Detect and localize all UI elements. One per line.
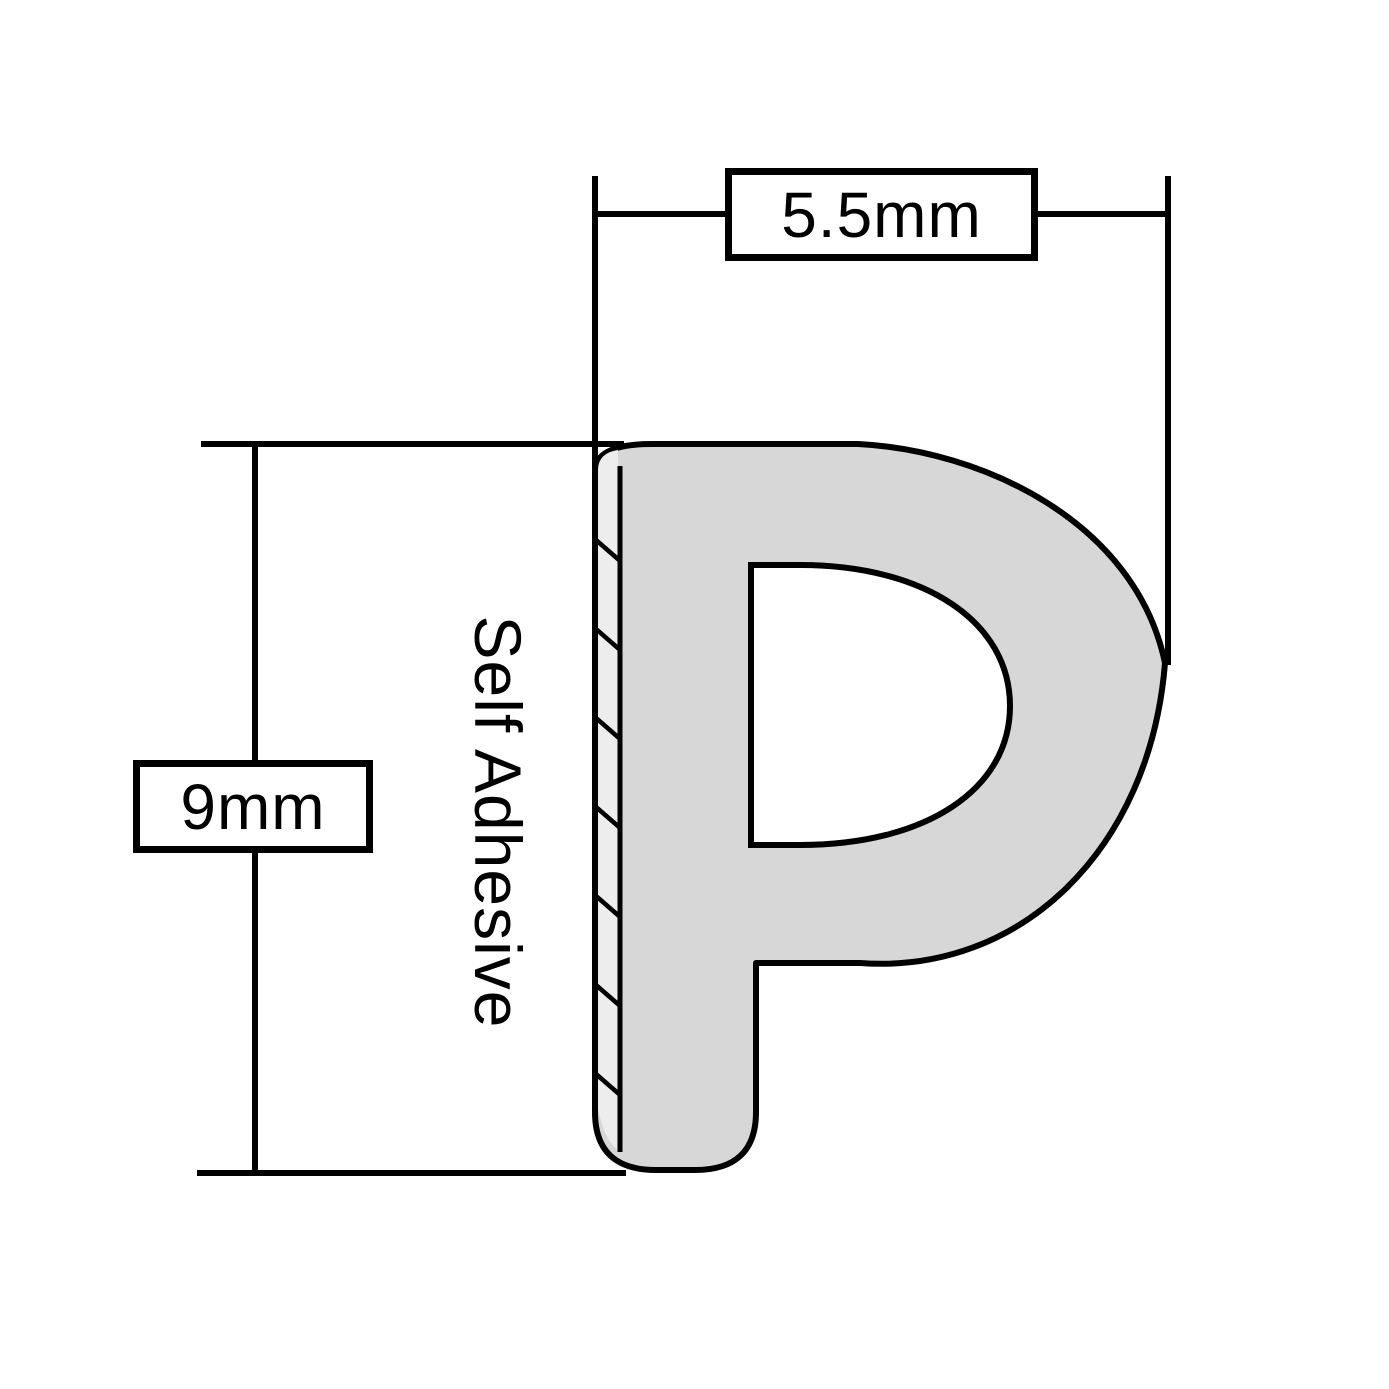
height-dimension-label-box: 9mm <box>133 760 373 853</box>
height-dimension-value: 9mm <box>180 775 325 839</box>
width-dimension-label-box: 5.5mm <box>725 168 1038 261</box>
diagram-canvas <box>0 0 1389 1389</box>
width-dimension-value: 5.5mm <box>781 183 982 247</box>
self-adhesive-label: Self Adhesive <box>456 582 540 1062</box>
seal-profile-diagram: 5.5mm 9mm Self Adhesive <box>0 0 1389 1389</box>
